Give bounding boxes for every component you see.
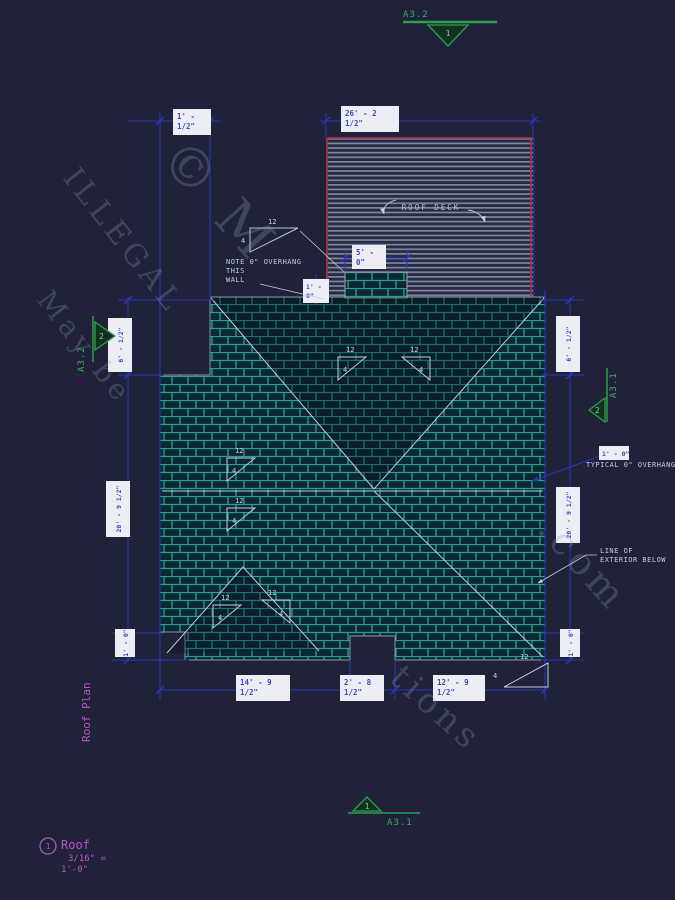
dim-left-mid: 20' - 9 1/2" [106, 481, 130, 537]
svg-text:6' - 1/2": 6' - 1/2" [565, 326, 573, 361]
roof-plan-drawing: ROOF DECK 1' - 1/2" [0, 0, 675, 900]
section-marker-top-label: A3.2 [403, 10, 429, 20]
svg-text:1' -: 1' - [306, 283, 322, 291]
svg-text:2' - 8: 2' - 8 [344, 678, 372, 687]
dim-right-bot: 1' - 0" [560, 629, 580, 657]
dim-chimney-width: 5' - 0" [352, 245, 386, 269]
svg-text:14' - 9: 14' - 9 [240, 678, 272, 687]
dim-right-top: 6' - 1/2" [556, 316, 580, 372]
svg-text:4: 4 [232, 517, 236, 525]
svg-text:12: 12 [268, 589, 276, 597]
dim-bottom-2: 2' - 8 1/2" [340, 675, 384, 701]
note-overhang-line3: WALL [226, 276, 245, 284]
svg-text:12: 12 [221, 594, 229, 602]
svg-text:12: 12 [410, 346, 418, 354]
svg-text:1/2": 1/2" [344, 688, 362, 697]
chimney [345, 272, 407, 298]
dim-chimney-side: 1' - 0" [303, 279, 329, 303]
detail-scale-line1: 3/16" = [68, 854, 107, 864]
svg-text:4: 4 [279, 610, 283, 618]
svg-text:1' - 0": 1' - 0" [122, 629, 130, 656]
svg-text:1: 1 [446, 29, 451, 38]
svg-text:0": 0" [356, 258, 365, 267]
svg-text:4: 4 [493, 672, 497, 680]
dim-left-bot: 1' - 0" [115, 629, 135, 657]
svg-text:26' - 2: 26' - 2 [345, 109, 377, 118]
dim-top: 26' - 2 1/2" [341, 106, 399, 132]
svg-text:20' - 9 1/2": 20' - 9 1/2" [115, 485, 123, 532]
detail-number: 1 [46, 842, 51, 851]
svg-text:1' -: 1' - [177, 112, 195, 121]
section-marker-bottom-label: A3.1 [387, 818, 413, 828]
section-marker-right-label: A3.1 [609, 372, 619, 398]
dim-bottom-1: 14' - 9 1/2" [236, 675, 290, 701]
main-roof [160, 272, 545, 660]
detail-scale-line2: 1'-0" [61, 865, 88, 875]
svg-text:1' - 0": 1' - 0" [602, 450, 629, 458]
svg-text:4: 4 [218, 614, 222, 622]
detail-name: Roof [61, 838, 90, 852]
roof-deck-label: ROOF DECK [402, 203, 461, 212]
typical-overhang-label: TYPICAL 0" OVERHANG [586, 461, 675, 469]
svg-text:1: 1 [365, 802, 370, 811]
svg-text:12: 12 [346, 346, 354, 354]
svg-text:1/2": 1/2" [240, 688, 258, 697]
svg-text:1/2": 1/2" [345, 119, 363, 128]
dim-overhang: 1' - 0" [599, 446, 629, 460]
svg-text:12: 12 [235, 497, 243, 505]
roof-plan-sheet: ROOF DECK 1' - 1/2" [0, 0, 675, 900]
svg-text:4: 4 [343, 366, 347, 374]
svg-text:4: 4 [419, 366, 423, 374]
svg-text:5' -: 5' - [356, 248, 374, 257]
svg-text:6' - 1/2": 6' - 1/2" [117, 327, 125, 362]
svg-text:12: 12 [235, 447, 243, 455]
svg-text:1' - 0": 1' - 0" [567, 629, 575, 656]
svg-text:12: 12 [520, 653, 528, 661]
plan-title-vertical: Roof Plan [80, 682, 93, 742]
svg-text:2: 2 [595, 406, 600, 415]
svg-text:4: 4 [232, 467, 236, 475]
